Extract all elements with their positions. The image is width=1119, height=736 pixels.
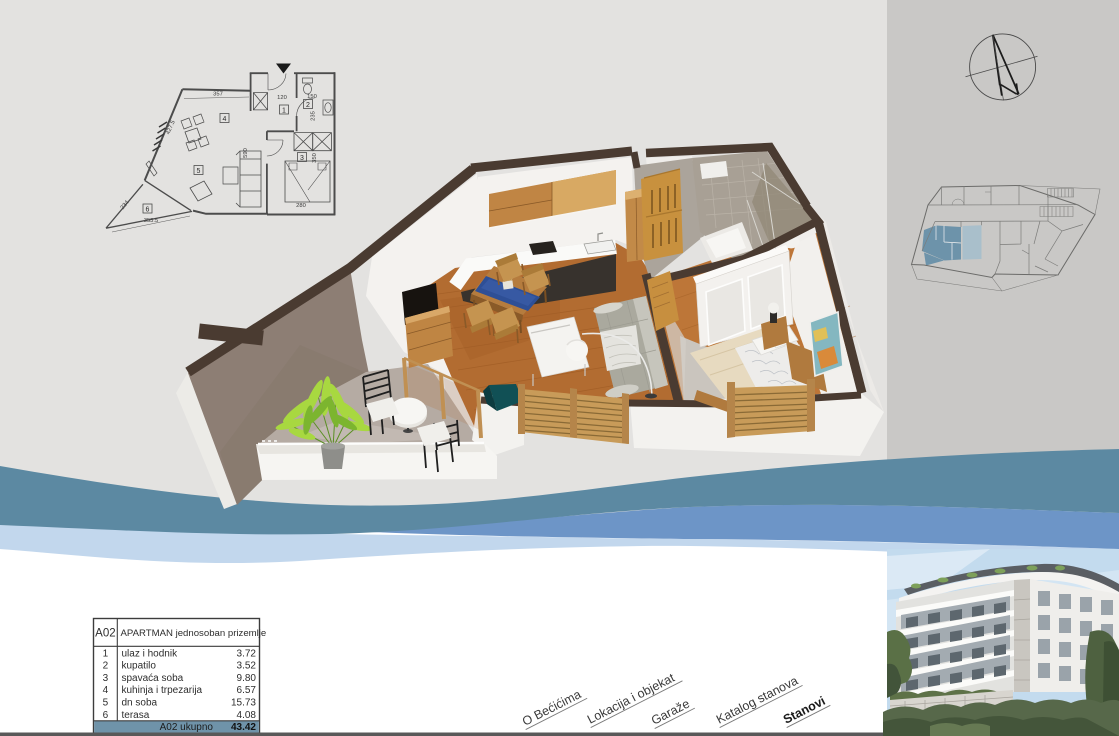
svg-text:235: 235: [311, 111, 317, 121]
svg-text:9.80: 9.80: [237, 673, 257, 684]
svg-text:1: 1: [103, 648, 109, 659]
svg-text:6: 6: [103, 710, 109, 721]
svg-text:ulaz i hodnik: ulaz i hodnik: [122, 648, 179, 659]
svg-text:6: 6: [146, 206, 150, 213]
svg-text:590: 590: [243, 148, 249, 158]
svg-text:spavaća soba: spavaća soba: [122, 673, 184, 684]
svg-text:353.5: 353.5: [144, 218, 159, 224]
svg-text:150: 150: [307, 94, 317, 100]
svg-text:6.57: 6.57: [237, 685, 257, 696]
svg-text:350: 350: [312, 153, 318, 163]
svg-text:3: 3: [300, 155, 304, 162]
svg-text:3: 3: [103, 673, 109, 684]
svg-text:43.42: 43.42: [231, 722, 256, 733]
svg-text:kupatilo: kupatilo: [122, 661, 157, 672]
svg-text:280: 280: [296, 203, 306, 209]
svg-text:A02: A02: [95, 628, 115, 640]
svg-text:4: 4: [103, 685, 109, 696]
svg-text:3.72: 3.72: [237, 648, 257, 659]
svg-text:4.08: 4.08: [237, 710, 257, 721]
svg-text:15.73: 15.73: [231, 698, 256, 709]
svg-text:2: 2: [103, 661, 109, 672]
svg-text:2: 2: [306, 102, 310, 109]
svg-text:1: 1: [282, 107, 286, 114]
svg-text:dn soba: dn soba: [122, 698, 158, 709]
svg-text:3.52: 3.52: [237, 661, 257, 672]
svg-text:A02 ukupno: A02 ukupno: [160, 722, 214, 733]
svg-text:5: 5: [197, 168, 201, 175]
svg-text:terasa: terasa: [122, 710, 150, 721]
svg-text:357: 357: [213, 92, 223, 98]
svg-text:4: 4: [223, 116, 227, 123]
svg-text:APARTMAN jednosoban prizemlje: APARTMAN jednosoban prizemlje: [121, 628, 267, 639]
svg-text:kuhinja i trpezarija: kuhinja i trpezarija: [122, 685, 203, 696]
svg-text:5: 5: [103, 698, 109, 709]
svg-text:120: 120: [277, 95, 287, 101]
